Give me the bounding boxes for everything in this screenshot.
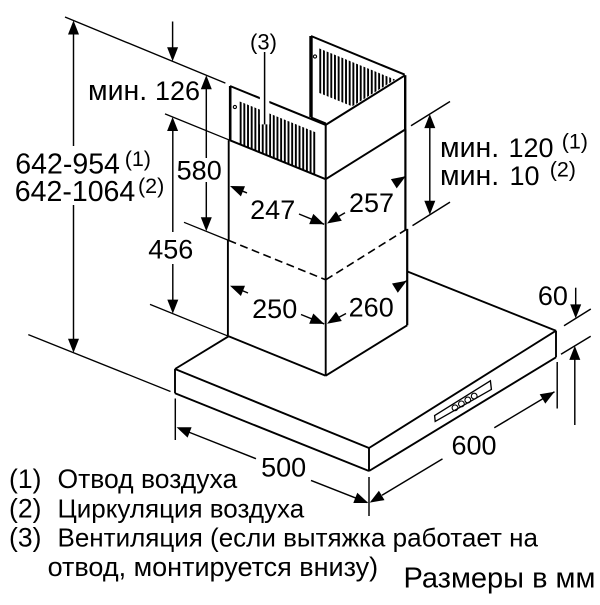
svg-text:мин.: мин. <box>88 75 147 107</box>
svg-text:456: 456 <box>148 234 193 264</box>
svg-text:(3): (3) <box>250 30 277 55</box>
svg-text:600: 600 <box>451 431 496 461</box>
svg-text:Вентиляция (если вытяжка работ: Вентиляция (если вытяжка работает на <box>58 522 539 552</box>
svg-text:Циркуляция воздуха: Циркуляция воздуха <box>58 493 305 523</box>
svg-text:642-1064: 642-1064 <box>15 176 136 208</box>
svg-text:126: 126 <box>155 76 200 106</box>
svg-text:(3): (3) <box>9 522 41 552</box>
svg-text:120: 120 <box>509 133 554 163</box>
svg-text:(1): (1) <box>125 147 151 171</box>
svg-text:250: 250 <box>252 294 297 324</box>
svg-text:(1): (1) <box>9 464 41 494</box>
svg-text:(2): (2) <box>138 174 164 198</box>
svg-text:10: 10 <box>510 161 540 191</box>
svg-text:Размеры в мм: Размеры в мм <box>404 563 596 595</box>
svg-text:257: 257 <box>349 188 394 218</box>
svg-text:500: 500 <box>261 453 306 483</box>
svg-text:(2): (2) <box>9 493 41 523</box>
svg-text:(2): (2) <box>550 158 576 182</box>
svg-text:мин.: мин. <box>440 160 499 192</box>
svg-text:отвод, монтируется внизу): отвод, монтируется внизу) <box>48 552 379 582</box>
svg-text:580: 580 <box>177 155 222 185</box>
svg-text:60: 60 <box>538 281 568 311</box>
svg-text:247: 247 <box>250 195 295 225</box>
svg-text:Отвод воздуха: Отвод воздуха <box>58 464 238 494</box>
svg-text:(1): (1) <box>562 130 588 154</box>
svg-text:260: 260 <box>349 293 394 323</box>
